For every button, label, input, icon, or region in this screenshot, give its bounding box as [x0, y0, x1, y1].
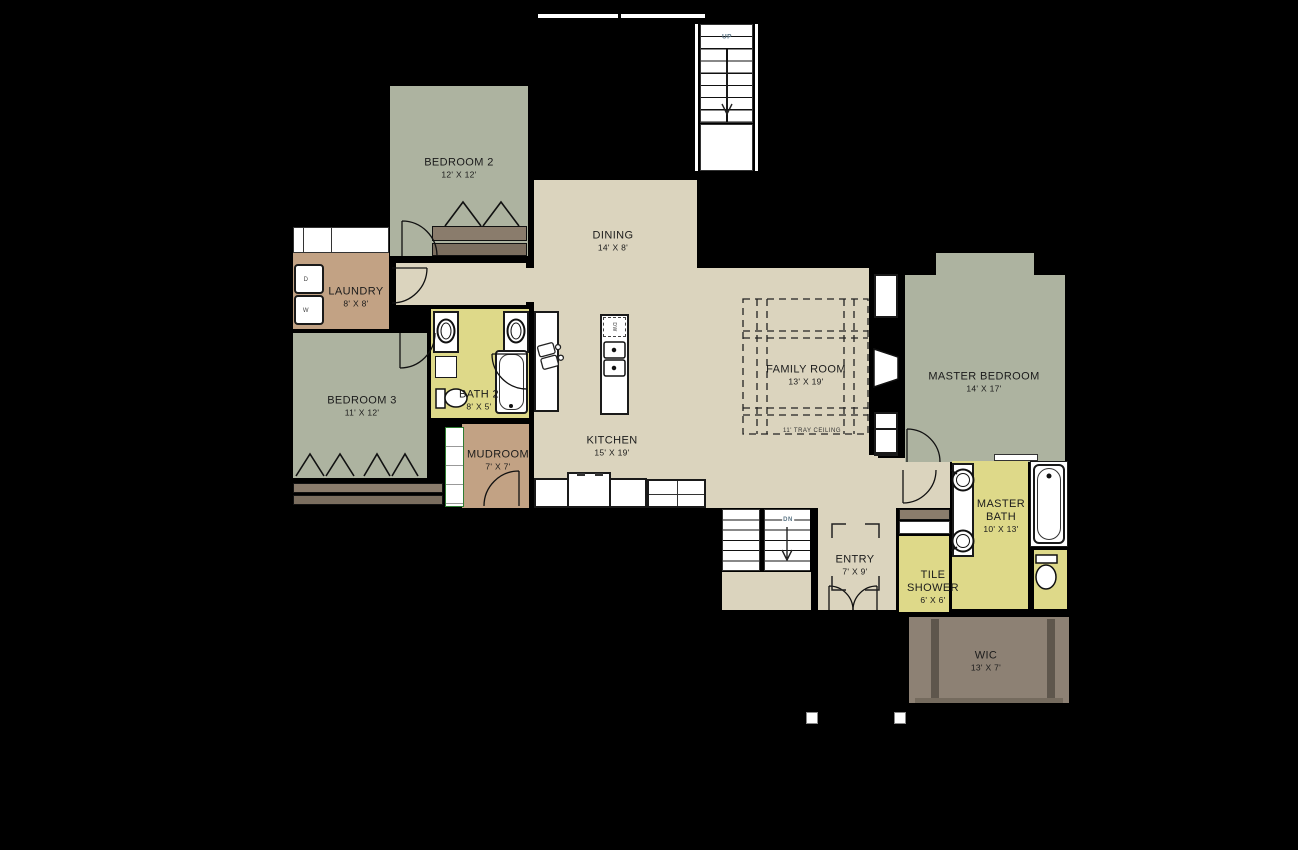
- stair-landing-floor: [722, 572, 811, 610]
- stair-rail: [695, 24, 698, 171]
- kitchen-counter-left: [534, 311, 559, 412]
- closet-shelf: [432, 226, 527, 241]
- vanity: [433, 311, 459, 353]
- stair-landing: [700, 124, 753, 171]
- linen-closet: [874, 428, 898, 454]
- stairs-down-left-flight: [722, 509, 760, 571]
- room-dining: [534, 180, 697, 272]
- master-bathtub-basin: [1037, 468, 1061, 540]
- entry-stair-wall: [810, 508, 817, 572]
- fridge-divider: [677, 481, 678, 506]
- shower-base: [435, 356, 457, 378]
- deck-rail-line: [538, 14, 618, 18]
- label-master-bedroom: MASTER BEDROOM 14' X 17': [928, 371, 1039, 394]
- wic-closet-rod: [1047, 619, 1055, 701]
- label-mudroom: MUDROOM 7' X 7': [467, 449, 529, 472]
- label-tile-shower: TILE SHOWER 6' X 6': [905, 569, 961, 605]
- wic-closet-rod: [931, 619, 939, 701]
- dryer: [294, 264, 324, 294]
- label-entry: ENTRY 7' X 9': [835, 554, 874, 577]
- counter-divider: [331, 228, 332, 252]
- porch-post: [894, 712, 906, 724]
- refrigerator: [647, 479, 706, 508]
- closet-shelf: [432, 243, 527, 256]
- bathtub-basin: [499, 354, 524, 410]
- closet-shelf: [293, 495, 443, 505]
- bathtub: [495, 350, 528, 414]
- vanity: [503, 311, 529, 353]
- deck-rail-line: [621, 14, 705, 18]
- label-family-room: FAMILY ROOM 13' X 19': [766, 364, 846, 387]
- mudroom-lockers: [445, 427, 464, 507]
- dishwasher-label: DW: [611, 322, 617, 331]
- label-dining: DINING 14' X 8': [593, 230, 634, 253]
- stairs-up-label: UP: [722, 34, 732, 41]
- master-bedroom-bay: [936, 253, 1034, 277]
- master-vanity: [952, 463, 974, 557]
- label-tray-ceiling: 11' TRAY CEILING: [783, 428, 841, 434]
- stairs-down-label: DN: [782, 517, 794, 523]
- counter-divider: [303, 228, 304, 252]
- floorplan-canvas: UP D W DW: [0, 0, 1298, 850]
- master-bathtub: [1033, 464, 1065, 544]
- window-sill: [994, 454, 1038, 461]
- builtin-cabinet: [874, 274, 898, 318]
- laundry-counter: [293, 227, 389, 253]
- shower-bench: [899, 509, 950, 520]
- wic-edge: [915, 698, 1063, 703]
- label-bedroom2: BEDROOM 2 12' X 12': [424, 157, 494, 180]
- room-master-bedroom: [905, 275, 1065, 462]
- water-closet: [1031, 550, 1067, 609]
- shower-bench-seat: [899, 521, 950, 534]
- washer-label: W: [303, 308, 309, 314]
- label-kitchen: KITCHEN 15' X 19': [586, 435, 637, 458]
- stair-divider: [726, 48, 728, 122]
- porch-post: [806, 712, 818, 724]
- range-knob: [577, 473, 585, 476]
- dryer-label: D: [304, 277, 309, 283]
- range: [567, 472, 611, 508]
- label-laundry: LAUNDRY 8' X 8': [328, 286, 383, 309]
- label-bath2: BATH 2 8' X 5': [459, 389, 499, 412]
- label-master-bath: MASTER BATH 10' X 13': [972, 498, 1030, 534]
- closet-shelf: [293, 483, 443, 493]
- range-knob: [595, 473, 603, 476]
- stair-rail: [755, 24, 758, 171]
- label-bedroom3: BEDROOM 3 11' X 12': [327, 395, 397, 418]
- hallway: [396, 263, 526, 305]
- label-wic: WIC 13' X 7': [971, 650, 1001, 673]
- master-hall: [877, 458, 950, 508]
